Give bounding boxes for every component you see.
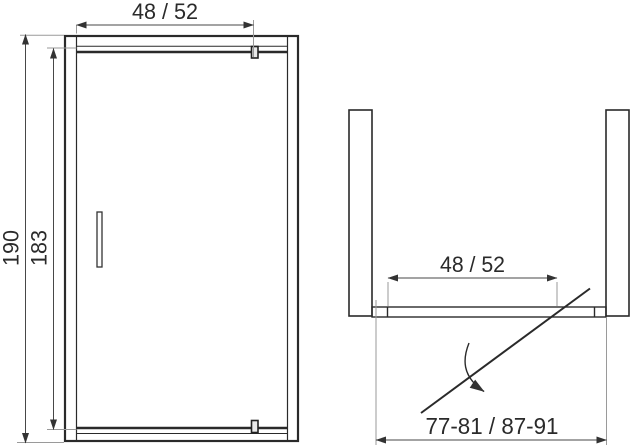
technical-drawing-page: 48 / 52 190 183 (0, 0, 632, 445)
front-door-width-label: 48 / 52 (132, 0, 198, 24)
frame-profile-plan (372, 307, 606, 317)
plan-installation-range-label: 77-81 / 87-91 (426, 413, 559, 439)
front-leaf-height-label: 183 (27, 230, 52, 266)
door-swing-arrow (465, 343, 484, 392)
front-view (65, 36, 298, 441)
front-door-width-dimension: 48 / 52 (77, 0, 254, 57)
front-leaf-height-dimension: 183 (27, 48, 77, 430)
left-wall-section (349, 110, 372, 316)
door-handle (97, 212, 102, 267)
plan-door-width-label: 48 / 52 (440, 252, 505, 277)
front-total-height-label: 190 (0, 230, 24, 266)
plan-door-width-dimension: 48 / 52 (388, 252, 557, 306)
right-wall-section (606, 110, 629, 316)
top-pivot-fitting (252, 47, 259, 59)
bottom-pivot-fitting (252, 421, 259, 433)
plan-installation-range-dimension: 77-81 / 87-91 (376, 300, 607, 445)
shower-door-dimension-drawing: 48 / 52 190 183 (0, 0, 632, 445)
